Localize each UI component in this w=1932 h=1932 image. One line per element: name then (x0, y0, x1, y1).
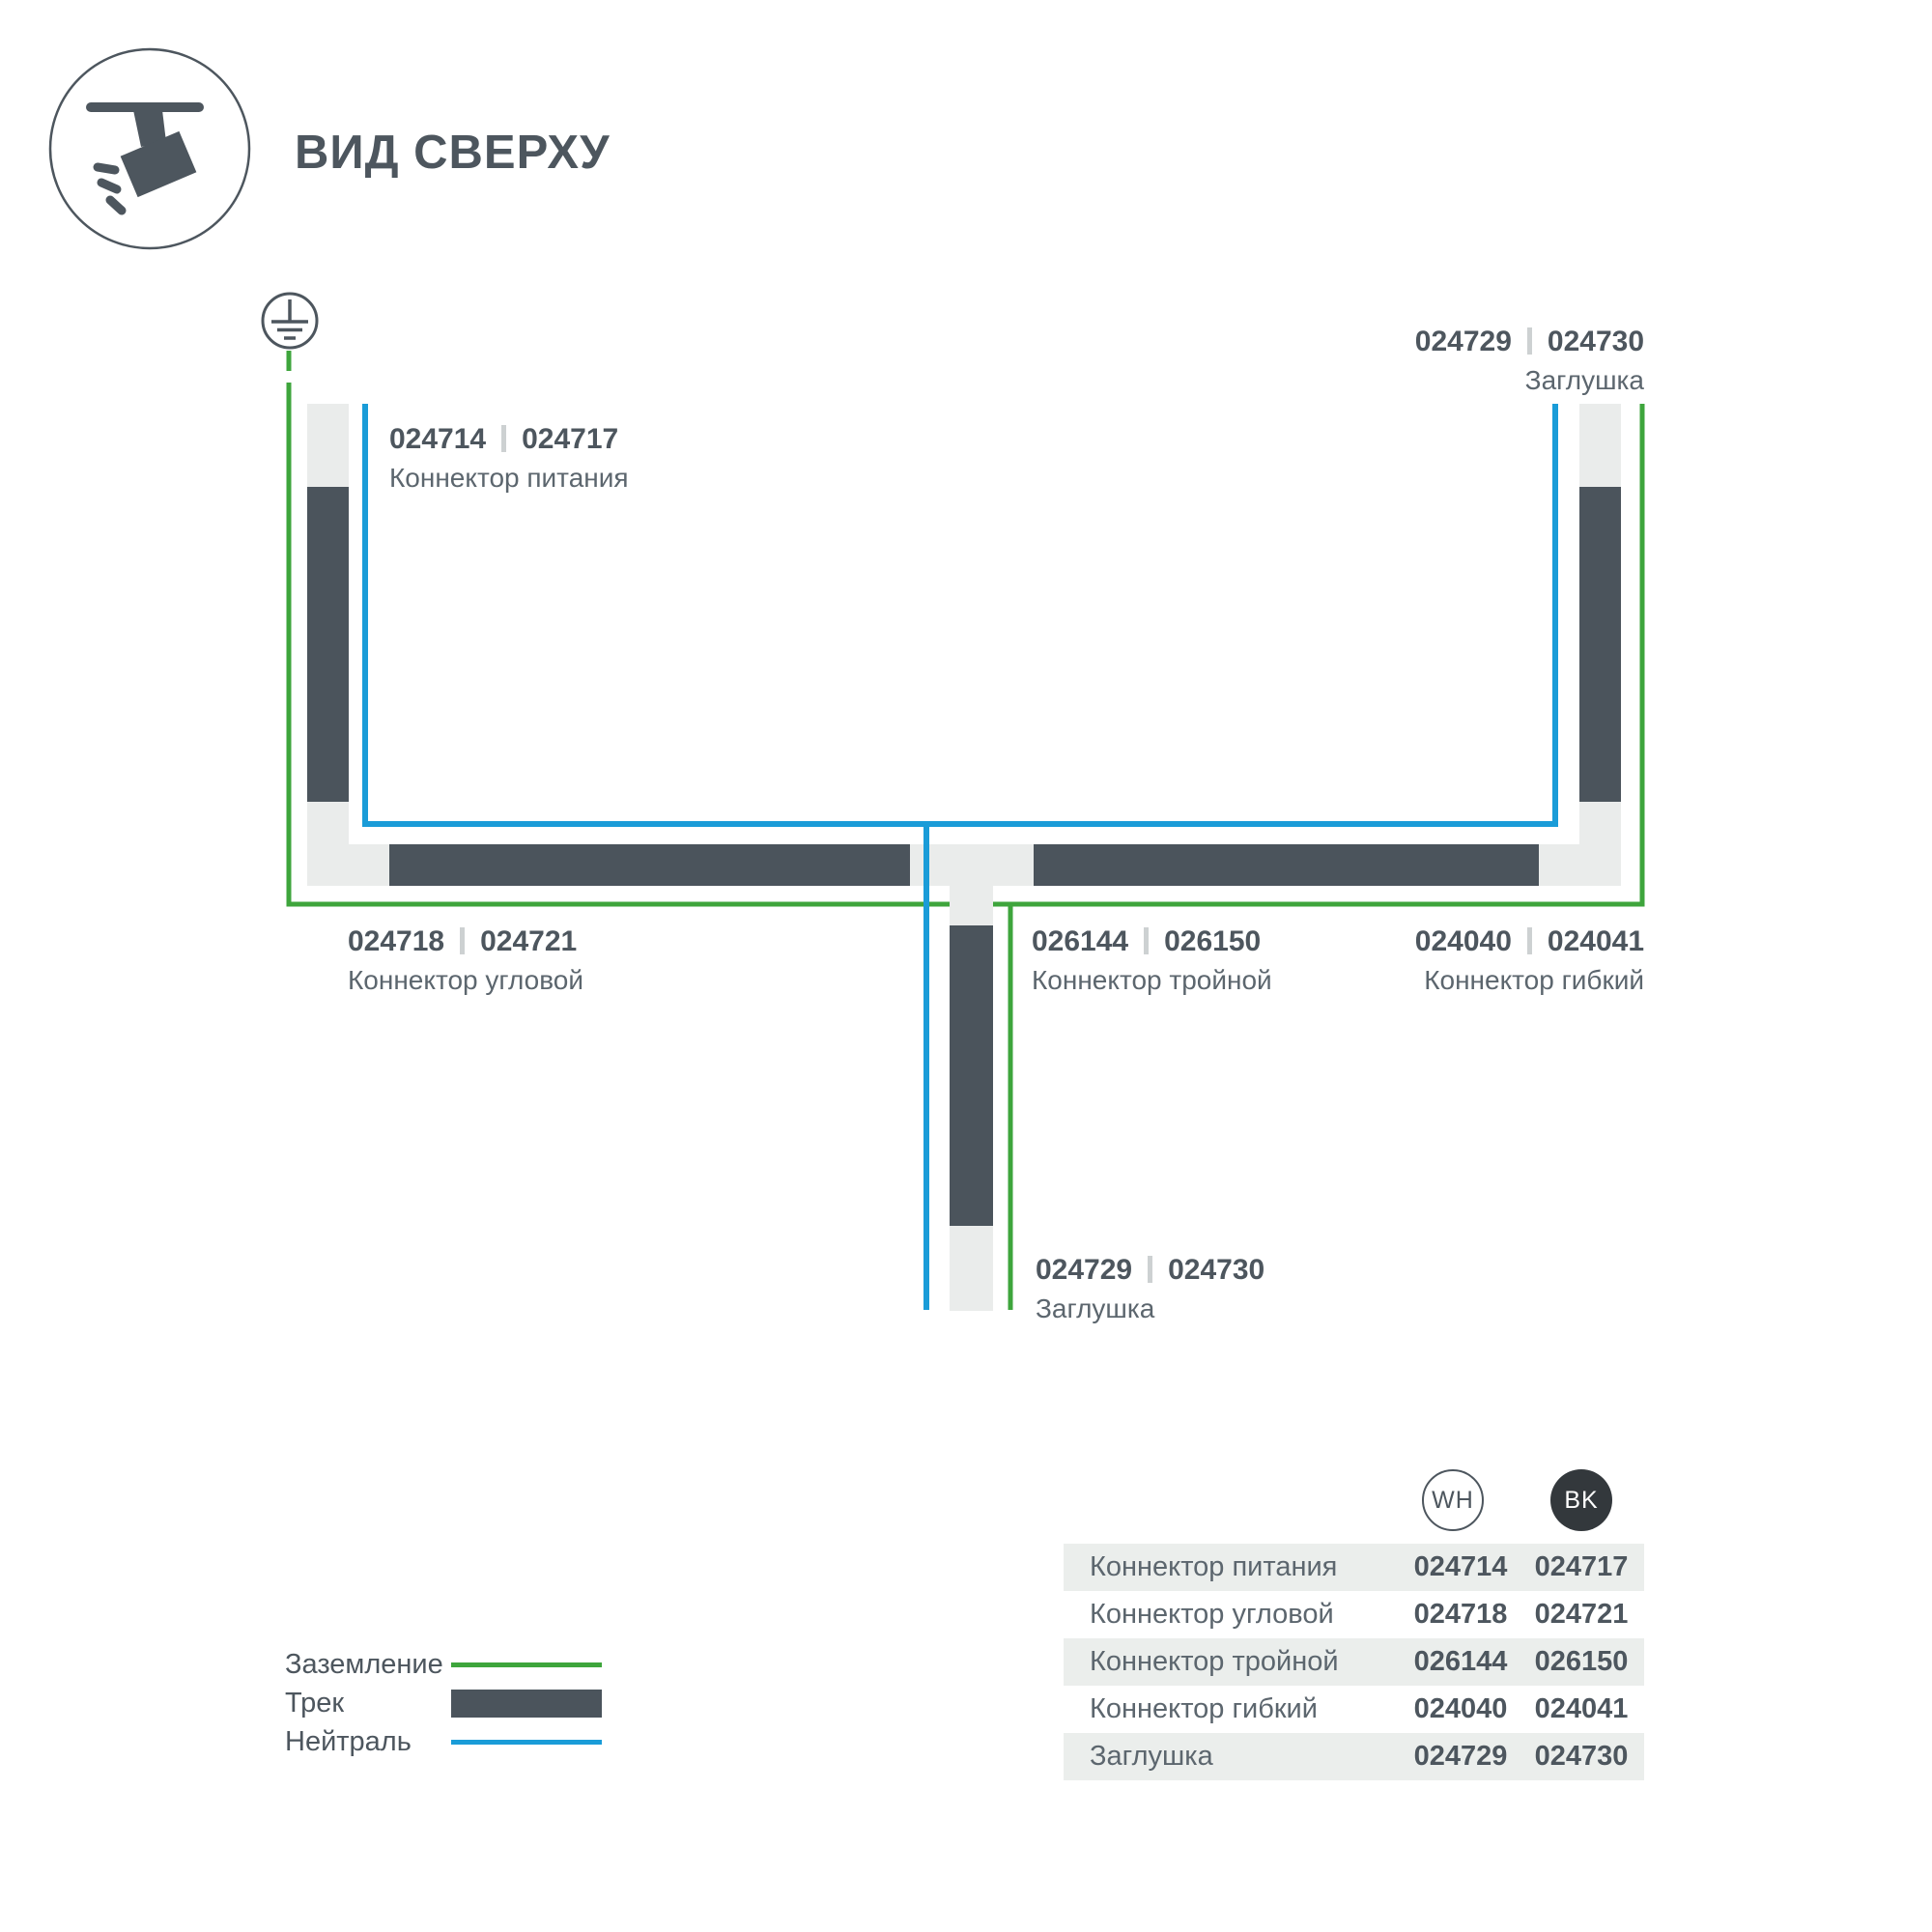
code-separator (1148, 1256, 1152, 1283)
ground-line-swatch (451, 1662, 602, 1667)
row-code-wh: 026144 (1403, 1638, 1519, 1686)
part-name: Коннектор тройной (1032, 967, 1272, 994)
page: ВИД СВЕРХУ (0, 0, 1932, 1932)
part-codes: 024729024730 (1415, 327, 1644, 356)
code-bk: 024041 (1548, 925, 1644, 957)
row-code-bk: 024717 (1519, 1544, 1644, 1591)
table-row: Заглушка 024729 024730 (1064, 1733, 1644, 1780)
part-codes: 024729024730 (1036, 1256, 1264, 1285)
table-row: Коннектор угловой 024718 024721 (1064, 1591, 1644, 1638)
row-name: Коннектор гибкий (1064, 1686, 1403, 1733)
legend-item-neutral: Нейтраль (285, 1722, 602, 1761)
track-bottom-left (389, 844, 910, 886)
code-separator (1527, 327, 1532, 355)
part-codes: 024714024717 (389, 425, 629, 454)
row-code-bk: 026150 (1519, 1638, 1644, 1686)
row-name: Заглушка (1064, 1733, 1403, 1780)
legend-label: Заземление (285, 1649, 451, 1681)
track-bar-swatch (451, 1690, 602, 1718)
row-code-bk: 024730 (1519, 1733, 1644, 1780)
row-code-wh: 024714 (1403, 1544, 1519, 1591)
row-code-wh: 024040 (1403, 1686, 1519, 1733)
row-code-bk: 024721 (1519, 1591, 1644, 1638)
code-wh: 024718 (348, 925, 444, 957)
code-bk: 024721 (480, 925, 577, 957)
part-codes: 024718024721 (348, 927, 583, 956)
label-endcap-bottom: 024729024730 Заглушка (1036, 1256, 1264, 1322)
code-wh: 026144 (1032, 925, 1128, 957)
legend-label: Нейтраль (285, 1726, 451, 1758)
column-badge-wh: WH (1422, 1469, 1484, 1531)
part-name: Коннектор гибкий (1415, 967, 1644, 994)
endcap-bottom-shape (950, 1226, 993, 1311)
product-table: Коннектор питания 024714 024717 Коннекто… (1064, 1544, 1644, 1780)
code-wh: 024040 (1415, 925, 1512, 957)
track-bottom-right (1034, 844, 1539, 886)
label-flexible-connector: 024040024041 Коннектор гибкий (1415, 927, 1644, 994)
label-power-connector: 024714024717 Коннектор питания (389, 425, 629, 492)
row-name: Коннектор угловой (1064, 1591, 1403, 1638)
row-name: Коннектор тройной (1064, 1638, 1403, 1686)
part-name: Коннектор угловой (348, 967, 583, 994)
legend-label: Трек (285, 1688, 451, 1719)
part-codes: 024040024041 (1415, 927, 1644, 956)
part-codes: 026144026150 (1032, 927, 1272, 956)
table-row: Коннектор тройной 026144 026150 (1064, 1638, 1644, 1686)
code-wh: 024714 (389, 423, 486, 455)
column-code-wh: WH (1432, 1487, 1474, 1515)
code-bk: 024717 (522, 423, 618, 455)
track-right (1579, 487, 1621, 802)
label-endcap-top: 024729024730 Заглушка (1415, 327, 1644, 394)
code-bk: 026150 (1164, 925, 1261, 957)
track-middle-leg (950, 925, 993, 1226)
code-wh: 024729 (1415, 326, 1512, 357)
legend-item-ground: Заземление (285, 1645, 602, 1684)
code-separator (501, 425, 506, 452)
row-code-wh: 024729 (1403, 1733, 1519, 1780)
code-separator (460, 927, 465, 954)
corner-connector-shape (307, 802, 389, 886)
part-name: Коннектор питания (389, 465, 629, 492)
flexible-connector-shape (1539, 802, 1621, 886)
ground-symbol-icon (263, 294, 317, 348)
code-separator (1144, 927, 1149, 954)
label-triple-connector: 026144026150 Коннектор тройной (1032, 927, 1272, 994)
code-bk: 024730 (1168, 1254, 1264, 1286)
endcap-top-shape (1579, 404, 1621, 487)
row-name: Коннектор питания (1064, 1544, 1403, 1591)
neutral-line-swatch (451, 1740, 602, 1745)
legend-item-track: Трек (285, 1684, 602, 1722)
track-left (307, 487, 349, 802)
column-badge-bk: BK (1550, 1469, 1612, 1531)
legend: Заземление Трек Нейтраль (285, 1645, 602, 1761)
table-row: Коннектор гибкий 024040 024041 (1064, 1686, 1644, 1733)
part-name: Заглушка (1036, 1295, 1264, 1322)
code-wh: 024729 (1036, 1254, 1132, 1286)
code-bk: 024730 (1548, 326, 1644, 357)
part-name: Заглушка (1415, 367, 1644, 394)
row-code-wh: 024718 (1403, 1591, 1519, 1638)
row-code-bk: 024041 (1519, 1686, 1644, 1733)
power-connector-shape (307, 404, 349, 487)
table-row: Коннектор питания 024714 024717 (1064, 1544, 1644, 1591)
column-code-bk: BK (1564, 1487, 1598, 1515)
code-separator (1527, 927, 1532, 954)
label-corner-connector: 024718024721 Коннектор угловой (348, 927, 583, 994)
